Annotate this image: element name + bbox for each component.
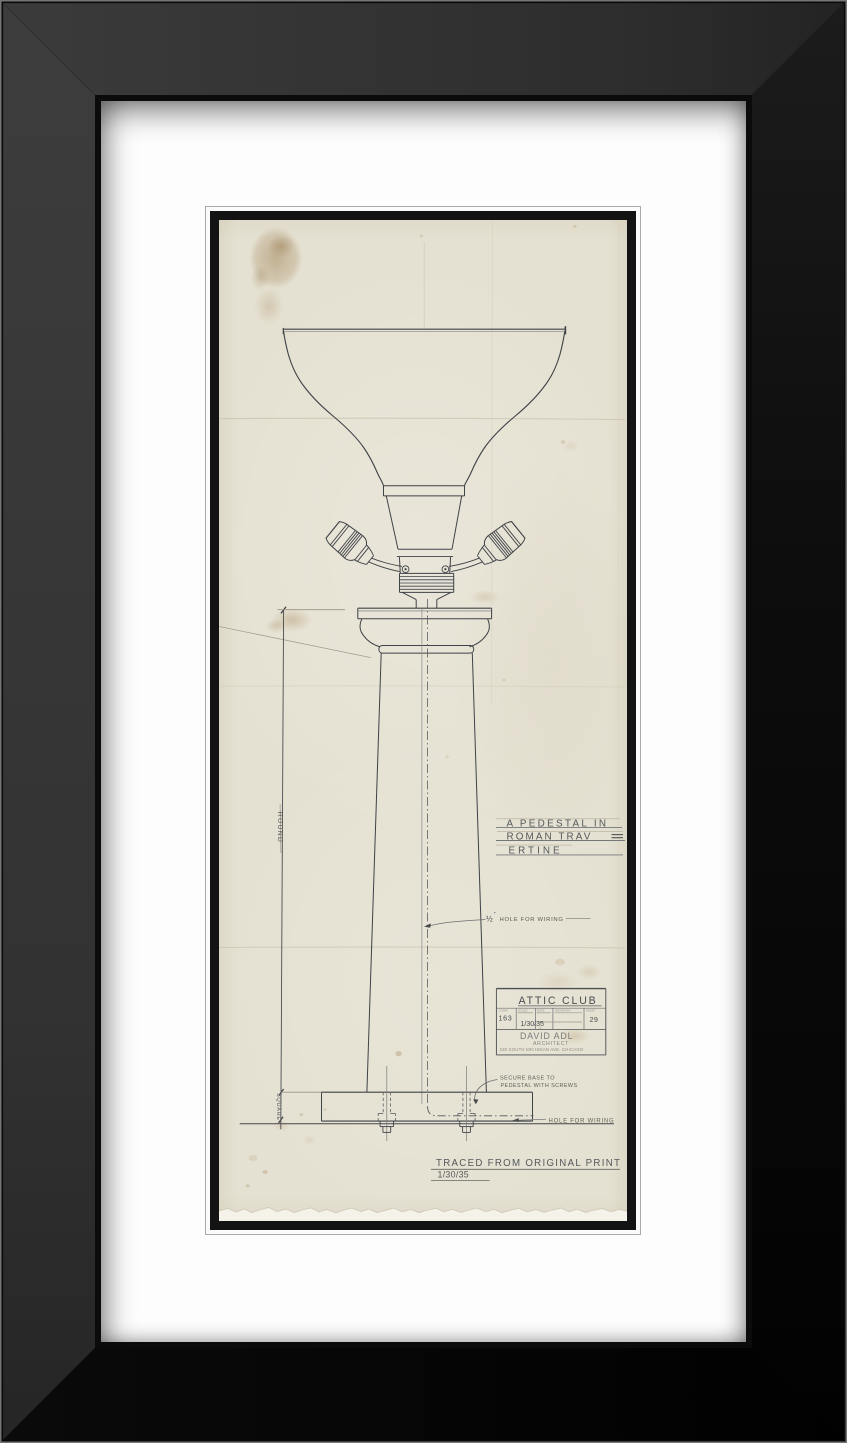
- svg-text:½: ½: [486, 914, 493, 923]
- svg-text:163: 163: [499, 1014, 513, 1023]
- svg-text:SECURE BASE TO: SECURE BASE TO: [500, 1075, 555, 1081]
- svg-text:DATE: DATE: [537, 1009, 545, 1013]
- svg-text:DRAWN BY: DRAWN BY: [555, 1009, 571, 1013]
- svg-text:PEDESTAL WITH SCREWS: PEDESTAL WITH SCREWS: [501, 1083, 578, 1089]
- svg-text:HOLE FOR WIRING: HOLE FOR WIRING: [549, 1119, 615, 1125]
- svg-text:ATTIC CLUB: ATTIC CLUB: [519, 995, 598, 1007]
- svg-text:ARCHITECT: ARCHITECT: [533, 1041, 569, 1047]
- svg-text:COMM: COMM: [499, 1009, 509, 1013]
- svg-text:29: 29: [590, 1015, 599, 1024]
- svg-text:TRACED FROM ORIGINAL PRINT: TRACED FROM ORIGINAL PRINT: [436, 1158, 621, 1169]
- svg-text:DAVID ADL: DAVID ADL: [520, 1031, 573, 1041]
- svg-text:HOLE FOR WIRING: HOLE FOR WIRING: [500, 917, 564, 923]
- svg-text:SQUARE: SQUARE: [275, 1093, 281, 1121]
- svg-text:″: ″: [494, 912, 496, 918]
- svg-text:220 SOUTH MICHIGAN AVE. CHICA: 220 SOUTH MICHIGAN AVE. CHICAGO: [500, 1047, 584, 1052]
- svg-text:SHEET: SHEET: [586, 1009, 596, 1013]
- svg-text:SCALE: SCALE: [518, 1009, 528, 1013]
- svg-text:ROUND: ROUND: [276, 812, 283, 843]
- svg-text:1/30/35: 1/30/35: [438, 1170, 469, 1180]
- svg-text:ROMAN TRAV: ROMAN TRAV: [507, 832, 593, 843]
